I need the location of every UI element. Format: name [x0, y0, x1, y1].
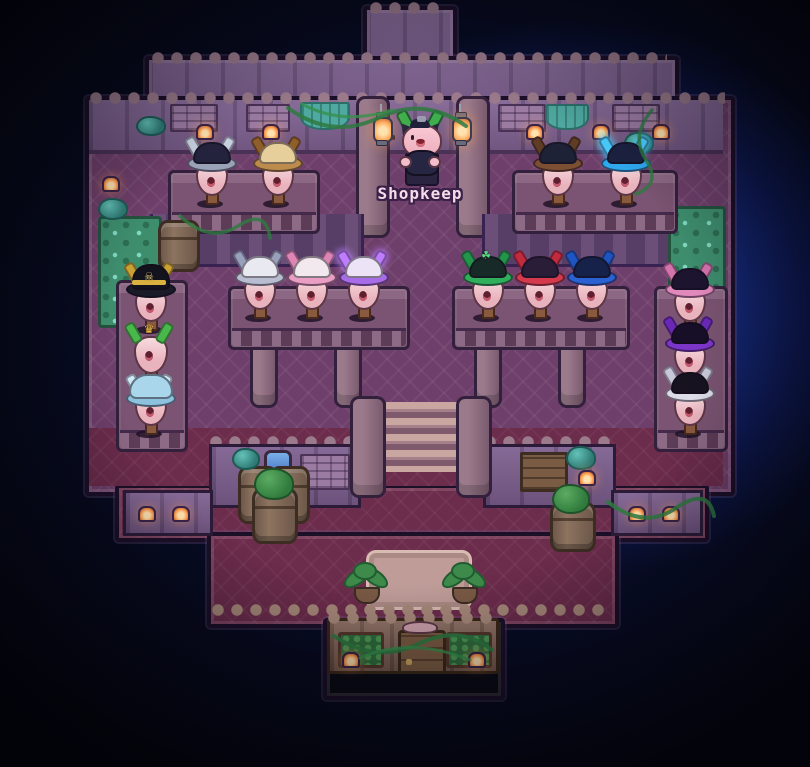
- hat-display-navy-silver[interactable]: [180, 136, 240, 210]
- planter-bush: [552, 484, 590, 514]
- shopkeep-hair-patch: [417, 116, 426, 122]
- battlements: [151, 52, 667, 64]
- shopkeep-label: Shopkeep: [348, 184, 492, 203]
- stair-pillar: [350, 396, 386, 498]
- clover-icon: ☘: [456, 250, 516, 262]
- side-wall-right: [611, 490, 703, 536]
- stair-pillar: [456, 396, 492, 498]
- shopkeep-character[interactable]: [392, 110, 448, 186]
- potted-palm: [344, 560, 388, 604]
- hat-display-white-silver[interactable]: [228, 250, 288, 324]
- teal-curtain: [545, 104, 589, 130]
- shop-door[interactable]: [398, 630, 446, 674]
- planter-bush: [254, 468, 294, 500]
- hat-display-white-violet[interactable]: [332, 250, 392, 324]
- staircase[interactable]: [382, 402, 462, 472]
- teal-curtain: [300, 102, 350, 130]
- hat-display-red-trim[interactable]: [508, 250, 568, 324]
- hanging-lantern: [450, 104, 470, 150]
- hat-display-powder-blue[interactable]: [119, 366, 179, 440]
- hat-display-blue-trim[interactable]: [560, 250, 620, 324]
- shopkeep-paw: [399, 156, 412, 168]
- teal-bush: [98, 198, 128, 220]
- table-leg: [250, 340, 278, 408]
- shopkeep-mouth: [416, 139, 425, 147]
- hat-display-white-pink[interactable]: [280, 250, 340, 324]
- table-leg: [558, 340, 586, 408]
- teal-bush: [566, 446, 596, 470]
- door-awning: [402, 621, 438, 634]
- wall-lamp: [662, 506, 680, 522]
- battlements: [369, 2, 445, 14]
- hat-display-shadow-white[interactable]: [658, 366, 718, 440]
- game-scene: Shopkeep ☘☠♛: [0, 0, 810, 767]
- hanging-lantern: [371, 104, 391, 150]
- skull-icon: ☠: [119, 271, 179, 283]
- wall-lamp: [342, 652, 360, 668]
- teal-bush: [232, 448, 260, 470]
- side-wall-left: [123, 490, 213, 536]
- shopkeep-paw: [428, 156, 441, 168]
- potted-palm: [442, 560, 486, 604]
- hat-display-cyan-glow[interactable]: [594, 136, 654, 210]
- wall-lamp: [172, 506, 190, 522]
- wall-lamp: [138, 506, 156, 522]
- wall-lamp: [628, 506, 646, 522]
- wall-lamp: [468, 652, 486, 668]
- hat-display-brown-dark[interactable]: [526, 136, 586, 210]
- hat-display-tan-leather[interactable]: [246, 136, 306, 210]
- hat-display-green-clover[interactable]: ☘: [456, 250, 516, 324]
- wall-lamp: [102, 176, 120, 192]
- battlements: [89, 92, 725, 104]
- wall-lamp: [652, 124, 670, 140]
- teal-bush: [136, 116, 166, 136]
- crown-icon: ♛: [119, 323, 179, 335]
- wall-lamp: [578, 470, 596, 486]
- shopkeep-eye: [411, 135, 414, 140]
